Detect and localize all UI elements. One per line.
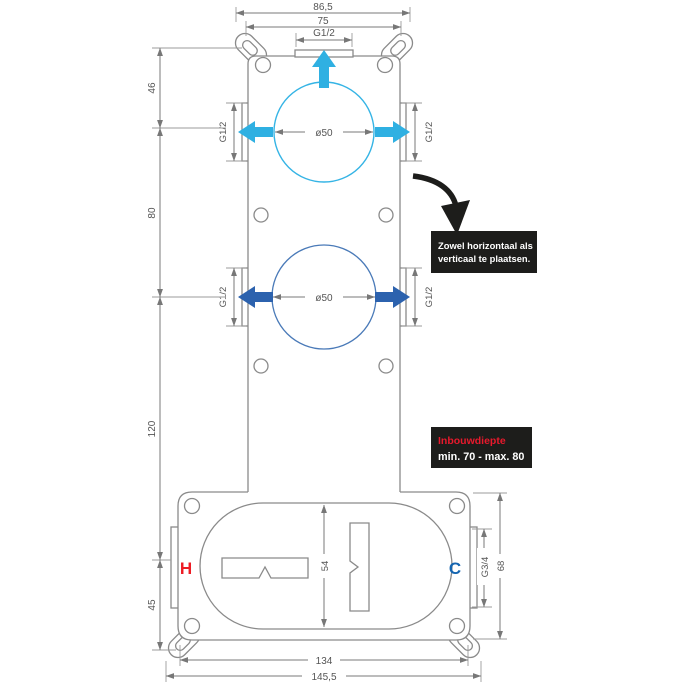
dim-label: 134 xyxy=(316,656,333,667)
dim-label: G1/2 xyxy=(218,122,229,143)
screw-hole xyxy=(379,359,393,373)
dim-label: G1/2 xyxy=(424,287,435,308)
screw-hole xyxy=(378,58,393,73)
dim-bottom-134: 134 xyxy=(180,645,468,667)
dim-label: 75 xyxy=(317,16,329,27)
screw-hole xyxy=(185,619,200,634)
dim-label: 86,5 xyxy=(313,2,333,13)
dim-label: G1/2 xyxy=(313,28,335,39)
dim-label: 80 xyxy=(147,207,158,219)
dim-label: 54 xyxy=(320,561,331,572)
placement-note: Zowel horizontaal als verticaal te plaat… xyxy=(431,231,537,273)
placement-note-line2: verticaal te plaatsen. xyxy=(438,253,530,264)
dim-label: G3/4 xyxy=(480,557,491,578)
dim-label: 120 xyxy=(147,420,158,437)
dim-label: 45 xyxy=(147,599,158,611)
dim-label: 46 xyxy=(147,82,158,94)
mixer-installation-drawing: 86,5 75 G1/2 ø50 ø50 G1/2 G1/2 xyxy=(0,0,685,685)
depth-note-title: Inbouwdiepte xyxy=(438,435,506,447)
screw-hole xyxy=(185,499,200,514)
screw-hole xyxy=(254,359,268,373)
technical-diagram-page: 86,5 75 G1/2 ø50 ø50 G1/2 G1/2 xyxy=(0,0,685,685)
screw-hole xyxy=(254,208,268,222)
dim-label: 68 xyxy=(496,561,507,572)
screw-hole xyxy=(379,208,393,222)
depth-note: Inbouwdiepte min. 70 - max. 80 xyxy=(431,427,532,468)
screw-hole xyxy=(450,499,465,514)
rotate-arrow-icon xyxy=(413,176,470,235)
screw-hole xyxy=(450,619,465,634)
dim-label: 145,5 xyxy=(311,672,336,683)
placement-note-line1: Zowel horizontaal als xyxy=(438,240,533,251)
hot-water-label: H xyxy=(180,559,192,578)
screw-hole xyxy=(256,58,271,73)
dim-label: ø50 xyxy=(315,128,333,139)
cold-water-label: C xyxy=(449,559,461,578)
dim-label: G1/2 xyxy=(424,122,435,143)
depth-note-value: min. 70 - max. 80 xyxy=(438,451,524,463)
dim-top-port: G1/2 xyxy=(296,28,352,47)
dim-label: ø50 xyxy=(315,293,333,304)
riser-body xyxy=(248,56,400,492)
